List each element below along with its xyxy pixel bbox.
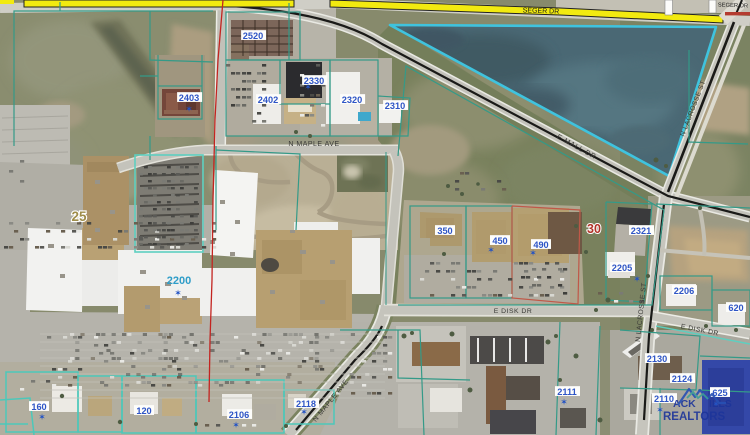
svg-text:620: 620 <box>728 303 743 313</box>
svg-text:REALTORS: REALTORS <box>663 411 726 423</box>
svg-text:2320: 2320 <box>342 95 362 105</box>
svg-text:2205: 2205 <box>612 263 632 273</box>
svg-text:2403: 2403 <box>179 93 199 103</box>
svg-text:✶: ✶ <box>232 420 240 430</box>
svg-text:2206: 2206 <box>674 286 694 296</box>
svg-text:2106: 2106 <box>229 410 249 420</box>
svg-text:SEGER DR: SEGER DR <box>523 7 560 15</box>
svg-text:✶: ✶ <box>304 82 312 92</box>
svg-text:2130: 2130 <box>647 354 667 364</box>
svg-text:2321: 2321 <box>631 226 651 236</box>
svg-text:✶: ✶ <box>633 274 641 284</box>
svg-text:✶: ✶ <box>529 248 537 258</box>
svg-text:350: 350 <box>437 226 452 236</box>
svg-text:2111: 2111 <box>557 387 576 397</box>
svg-text:✶: ✶ <box>487 245 495 255</box>
svg-text:ACK: ACK <box>673 398 696 410</box>
svg-text:25: 25 <box>71 209 87 224</box>
svg-text:✶: ✶ <box>300 407 308 417</box>
svg-text:✶: ✶ <box>174 288 182 298</box>
svg-text:2520: 2520 <box>243 31 263 41</box>
svg-text:2200: 2200 <box>167 275 191 287</box>
svg-text:N MAPLE AVE: N MAPLE AVE <box>288 141 339 148</box>
svg-text:✶: ✶ <box>560 397 568 407</box>
svg-text:2402: 2402 <box>258 95 278 105</box>
svg-text:120: 120 <box>136 406 151 416</box>
svg-text:160: 160 <box>31 402 46 412</box>
svg-text:✶: ✶ <box>185 104 193 114</box>
svg-text:E DISK DR: E DISK DR <box>494 308 533 315</box>
svg-text:30: 30 <box>587 222 601 236</box>
svg-text:SEGER DR: SEGER DR <box>718 2 748 9</box>
svg-text:2124: 2124 <box>672 374 693 384</box>
svg-text:2310: 2310 <box>385 101 405 111</box>
svg-text:2110: 2110 <box>654 394 674 404</box>
svg-text:✶: ✶ <box>38 412 46 422</box>
